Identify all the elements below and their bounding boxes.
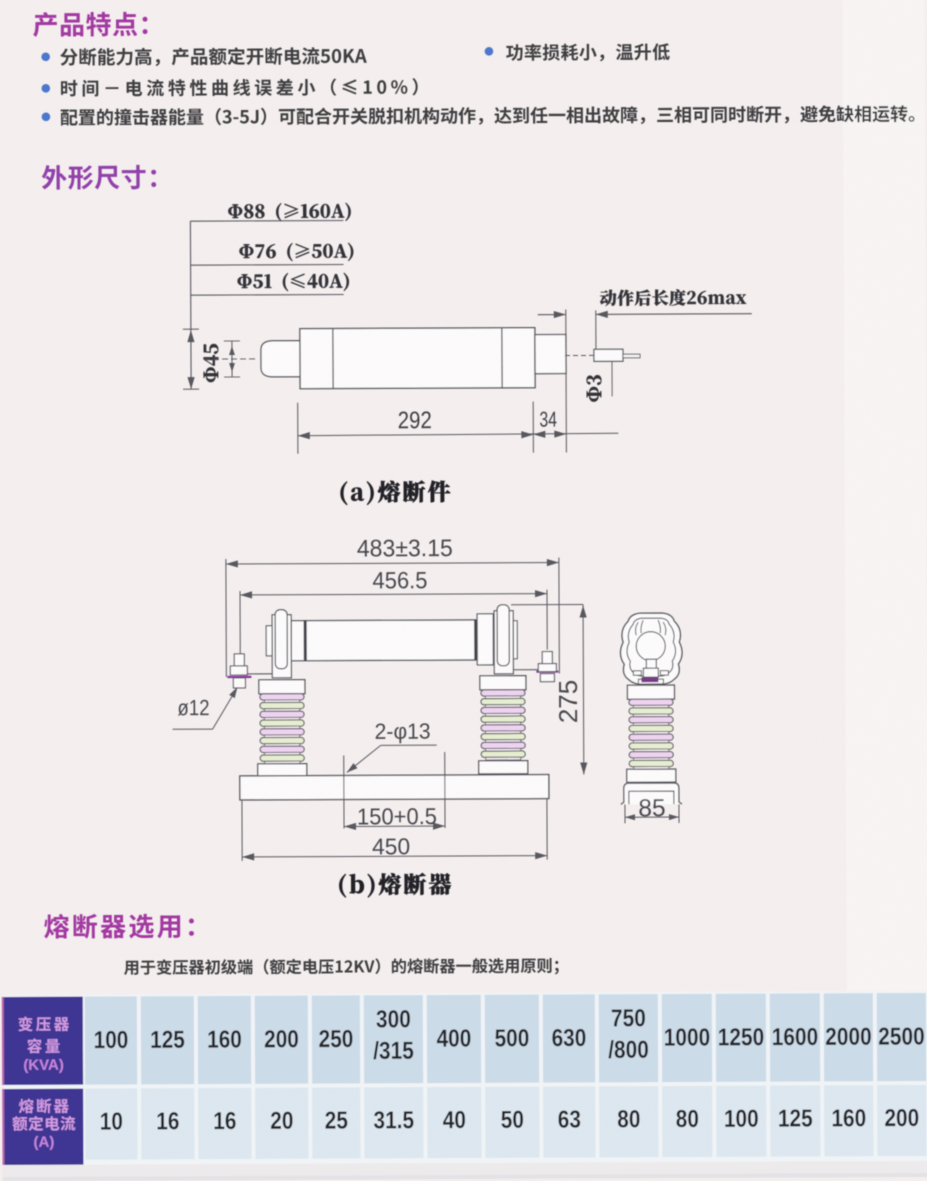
svg-text:ø12: ø12	[177, 695, 209, 720]
svg-text:/315: /315	[373, 1038, 414, 1065]
svg-text:630: 630	[552, 1025, 587, 1052]
svg-text:200: 200	[884, 1105, 919, 1132]
svg-text:500: 500	[495, 1025, 530, 1052]
svg-text:2000: 2000	[825, 1024, 872, 1051]
svg-text:31.5: 31.5	[373, 1107, 414, 1134]
svg-text:2500: 2500	[878, 1023, 925, 1050]
svg-text:125: 125	[778, 1105, 813, 1132]
svg-text:80: 80	[676, 1106, 699, 1133]
svg-text:10: 10	[100, 1108, 123, 1135]
svg-text:20: 20	[270, 1108, 293, 1135]
svg-text:40: 40	[443, 1107, 466, 1134]
svg-text:292: 292	[398, 407, 432, 434]
svg-text:750: 750	[611, 1005, 646, 1032]
svg-text:100: 100	[94, 1027, 129, 1054]
svg-text:85: 85	[638, 795, 665, 822]
svg-text:456.5: 456.5	[372, 567, 427, 593]
svg-text:125: 125	[150, 1027, 185, 1054]
svg-text:80: 80	[617, 1106, 640, 1133]
svg-text:2-φ13: 2-φ13	[375, 719, 431, 744]
svg-text:25: 25	[325, 1107, 348, 1134]
svg-text:(A): (A)	[33, 1134, 54, 1151]
svg-text:160: 160	[207, 1026, 242, 1053]
svg-text:483±3.15: 483±3.15	[357, 535, 453, 562]
svg-text:300: 300	[376, 1006, 411, 1033]
svg-text:250: 250	[319, 1026, 354, 1053]
svg-text:34: 34	[539, 408, 557, 432]
svg-text:100: 100	[724, 1106, 759, 1133]
svg-text:63: 63	[558, 1106, 581, 1133]
svg-text:450: 450	[372, 833, 410, 859]
svg-text:1000: 1000	[664, 1024, 711, 1051]
svg-text:1600: 1600	[772, 1024, 819, 1051]
svg-text:275: 275	[553, 680, 583, 724]
svg-text:(KVA): (KVA)	[23, 1057, 64, 1074]
svg-text:400: 400	[437, 1025, 472, 1052]
svg-text:160: 160	[831, 1105, 866, 1132]
svg-text:150+0.5: 150+0.5	[357, 803, 437, 829]
svg-text:/800: /800	[608, 1037, 649, 1064]
svg-text:200: 200	[264, 1026, 299, 1053]
svg-text:1250: 1250	[718, 1024, 765, 1051]
svg-text:50: 50	[501, 1107, 524, 1134]
svg-text:16: 16	[213, 1108, 236, 1135]
svg-text:16: 16	[156, 1108, 179, 1135]
